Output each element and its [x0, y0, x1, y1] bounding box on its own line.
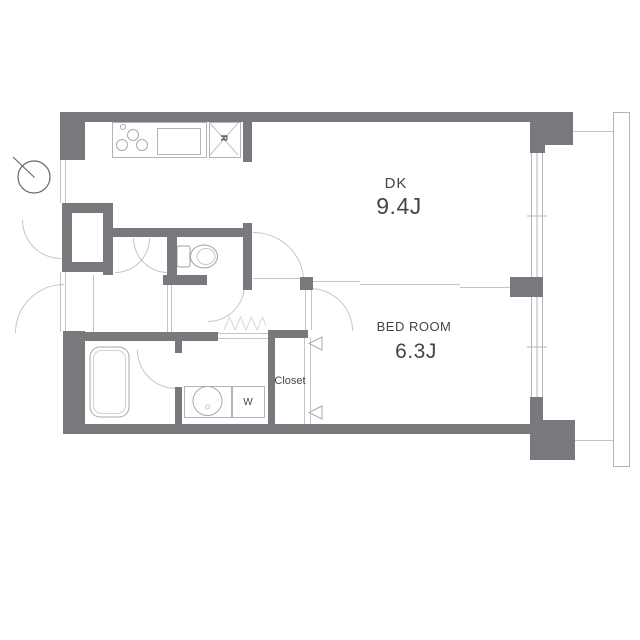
dk-area-label: 9.4J: [376, 193, 421, 220]
bedroom-window: [527, 297, 547, 397]
washer-label: W: [243, 397, 252, 408]
wall-kitchen-stub: [243, 122, 252, 162]
wall-bath-divider-lower: [175, 387, 182, 424]
refrigerator-label: R: [219, 135, 229, 142]
bedroom-area-label: 6.3J: [395, 340, 437, 364]
wall-bath-left-block: [63, 331, 85, 424]
closet-slide-arrow-icon: [309, 406, 322, 419]
wall-top-right-notch: [530, 145, 545, 153]
meterbox-wall-right: [103, 203, 113, 275]
dk-window: [527, 153, 547, 277]
wall-bottom-right-corner: [530, 420, 575, 460]
wall-toilet-top: [113, 228, 252, 237]
accordion-door-icon: [224, 317, 266, 330]
toilet-tank-icon: [177, 246, 190, 267]
entrance-symbol-icon: [13, 157, 35, 178]
bathtub-icon: [90, 347, 129, 417]
wall-bottom: [63, 424, 530, 434]
fixtures-layer: [0, 0, 640, 640]
wall-top-right-block: [530, 112, 573, 145]
wall-top: [60, 112, 573, 122]
wall-toilet-bottom: [163, 275, 207, 285]
closet-label: Closet: [274, 375, 305, 387]
floor-plan: DK 9.4J BED ROOM 6.3J Closet W R: [0, 0, 640, 640]
wall-right-mid-block: [510, 277, 543, 297]
wall-bath-divider-upper: [175, 341, 182, 353]
washbasin-bowl-icon: [193, 387, 222, 416]
wall-right-lower: [530, 397, 543, 420]
wall-washroom-top: [63, 332, 218, 341]
bedroom-label: BED ROOM: [377, 319, 452, 334]
wall-top-left-block: [60, 112, 85, 160]
dk-room-label: DK: [385, 175, 408, 192]
closet-slide-arrow-icon: [309, 337, 322, 350]
wall-bedroom-door-post: [300, 277, 313, 290]
